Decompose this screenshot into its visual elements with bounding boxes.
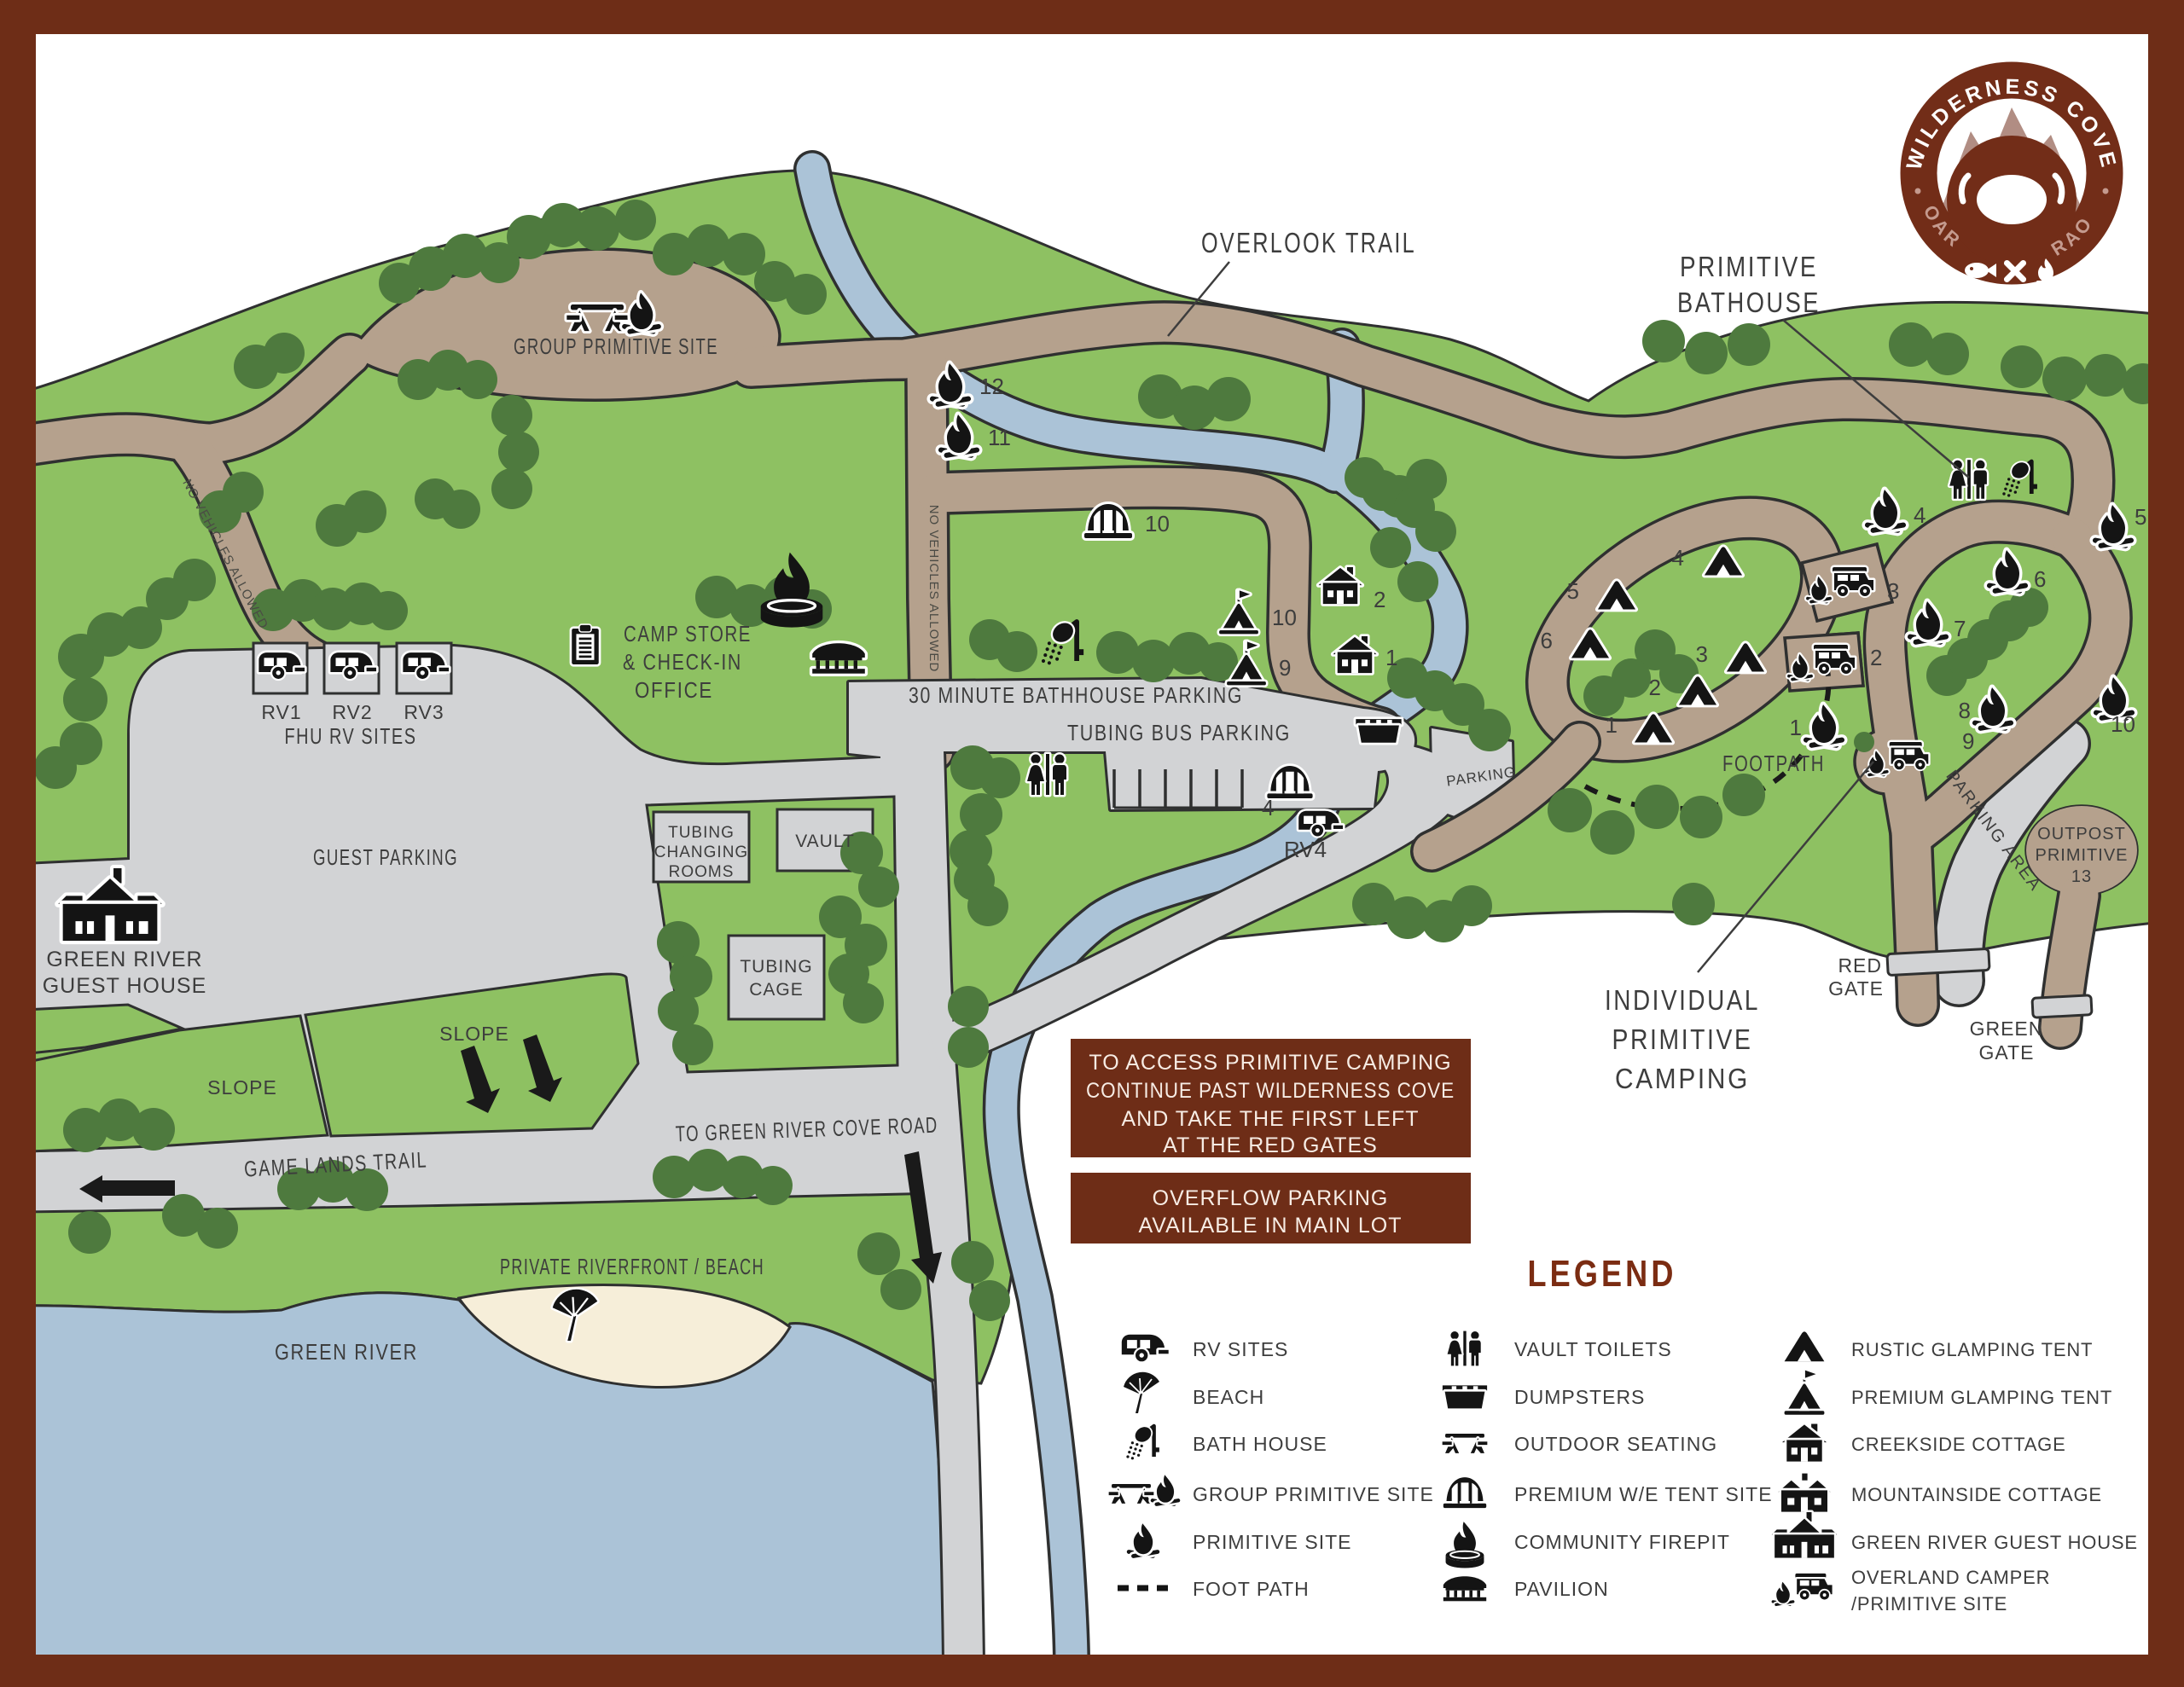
- svg-text:ROOMS: ROOMS: [669, 863, 735, 881]
- svg-text:GUEST HOUSE: GUEST HOUSE: [43, 974, 207, 998]
- svg-text:CAMPING: CAMPING: [1615, 1063, 1750, 1094]
- svg-text:4: 4: [1914, 502, 1926, 528]
- svg-text:GATE: GATE: [1828, 977, 1884, 1000]
- svg-text:BATH HOUSE: BATH HOUSE: [1193, 1433, 1327, 1455]
- svg-text:GATE: GATE: [1979, 1041, 2035, 1064]
- svg-text:RUSTIC GLAMPING TENT: RUSTIC GLAMPING TENT: [1851, 1339, 2093, 1360]
- svg-text:4: 4: [1262, 795, 1274, 820]
- svg-text:PREMIUM GLAMPING TENT: PREMIUM GLAMPING TENT: [1851, 1387, 2112, 1408]
- svg-text:FOOT PATH: FOOT PATH: [1193, 1578, 1310, 1600]
- svg-text:COMMUNITY FIREPIT: COMMUNITY FIREPIT: [1514, 1531, 1730, 1553]
- svg-text:8: 8: [1959, 698, 1971, 723]
- svg-text:CAMP STORE: CAMP STORE: [624, 621, 752, 646]
- svg-text:TO ACCESS PRIMITIVE CAMPING: TO ACCESS PRIMITIVE CAMPING: [1089, 1051, 1451, 1075]
- svg-text:SLOPE: SLOPE: [207, 1076, 277, 1099]
- svg-text:CONTINUE PAST WILDERNESS COVE: CONTINUE PAST WILDERNESS COVE: [1086, 1079, 1455, 1103]
- svg-text:1: 1: [1606, 712, 1618, 738]
- svg-text:3: 3: [1887, 578, 1899, 604]
- svg-text:GREEN RIVER: GREEN RIVER: [46, 948, 202, 971]
- svg-text:AT THE RED GATES: AT THE RED GATES: [1163, 1133, 1378, 1157]
- svg-text:AND TAKE THE FIRST LEFT: AND TAKE THE FIRST LEFT: [1122, 1107, 1420, 1131]
- svg-text:GREEN RIVER GUEST HOUSE: GREEN RIVER GUEST HOUSE: [1851, 1532, 2138, 1553]
- svg-text:TUBING: TUBING: [668, 824, 735, 842]
- svg-text:CAGE: CAGE: [749, 980, 804, 1000]
- svg-text:30 MINUTE BATHHOUSE PARKING: 30 MINUTE BATHHOUSE PARKING: [909, 682, 1243, 708]
- svg-text:DUMPSTERS: DUMPSTERS: [1514, 1386, 1645, 1408]
- svg-text:13: 13: [2071, 867, 2092, 886]
- svg-text:PRIMITIVE: PRIMITIVE: [1680, 251, 1818, 282]
- svg-text:5: 5: [2135, 504, 2146, 530]
- svg-text:OVERFLOW PARKING: OVERFLOW PARKING: [1153, 1186, 1389, 1210]
- svg-text:9: 9: [1962, 728, 1974, 754]
- svg-text:AVAILABLE IN MAIN LOT: AVAILABLE IN MAIN LOT: [1138, 1214, 1402, 1238]
- svg-text:GREEN: GREEN: [1970, 1017, 2044, 1040]
- svg-text:OFFICE: OFFICE: [635, 677, 713, 703]
- svg-text:VAULT: VAULT: [795, 832, 855, 851]
- svg-text:FHU RV SITES: FHU RV SITES: [285, 723, 417, 749]
- svg-text:PRIMITIVE: PRIMITIVE: [2035, 846, 2128, 865]
- svg-text:4: 4: [1672, 545, 1684, 571]
- svg-text:OUTDOOR SEATING: OUTDOOR SEATING: [1514, 1433, 1717, 1455]
- svg-text:PRIMITIVE SITE: PRIMITIVE SITE: [1193, 1531, 1352, 1553]
- svg-text:12: 12: [979, 374, 1004, 399]
- svg-text:10: 10: [2111, 711, 2135, 737]
- svg-text:2: 2: [1374, 587, 1385, 612]
- svg-text:7: 7: [1954, 616, 1966, 641]
- svg-text:6: 6: [1541, 628, 1553, 653]
- svg-text:5: 5: [1567, 578, 1579, 604]
- svg-text:OVERLAND CAMPER: OVERLAND CAMPER: [1851, 1567, 2050, 1588]
- svg-text:BEACH: BEACH: [1193, 1386, 1264, 1408]
- svg-text:11: 11: [988, 425, 1011, 450]
- svg-text:PRIVATE RIVERFRONT / BEACH: PRIVATE RIVERFRONT / BEACH: [500, 1254, 764, 1279]
- svg-text:2: 2: [1649, 675, 1661, 700]
- svg-text:RV3: RV3: [404, 701, 444, 723]
- svg-text:INDIVIDUAL: INDIVIDUAL: [1605, 984, 1760, 1016]
- svg-text:RV2: RV2: [332, 701, 372, 723]
- svg-text:RV4: RV4: [1284, 837, 1327, 862]
- svg-text:PREMIUM W/E TENT SITE: PREMIUM W/E TENT SITE: [1514, 1483, 1773, 1505]
- svg-text:NO VEHICLES ALLOWED: NO VEHICLES ALLOWED: [926, 505, 941, 673]
- svg-text:PRIMITIVE: PRIMITIVE: [1612, 1023, 1753, 1055]
- svg-text:1: 1: [1385, 645, 1397, 670]
- svg-text:LEGEND: LEGEND: [1528, 1253, 1677, 1295]
- svg-text:/PRIMITIVE SITE: /PRIMITIVE SITE: [1851, 1593, 2007, 1615]
- svg-text:FOOTPATH: FOOTPATH: [1722, 751, 1825, 776]
- svg-text:BATHOUSE: BATHOUSE: [1677, 287, 1821, 318]
- svg-text:TUBING: TUBING: [740, 957, 812, 977]
- svg-text:GROUP PRIMITIVE SITE: GROUP PRIMITIVE SITE: [1193, 1483, 1434, 1505]
- svg-text:MOUNTAINSIDE COTTAGE: MOUNTAINSIDE COTTAGE: [1851, 1484, 2102, 1505]
- svg-text:CHANGING: CHANGING: [654, 843, 748, 861]
- svg-text:10: 10: [1272, 605, 1297, 630]
- svg-text:GROUP PRIMITIVE SITE: GROUP PRIMITIVE SITE: [514, 333, 718, 359]
- svg-text:RV1: RV1: [261, 701, 301, 723]
- svg-text:9: 9: [1279, 655, 1291, 681]
- svg-text:3: 3: [1696, 641, 1708, 667]
- svg-text:VAULT TOILETS: VAULT TOILETS: [1514, 1338, 1672, 1360]
- svg-text:RV SITES: RV SITES: [1193, 1338, 1288, 1360]
- svg-text:GUEST PARKING: GUEST PARKING: [313, 844, 458, 870]
- svg-text:OUTPOST: OUTPOST: [2037, 825, 2126, 843]
- svg-text:TUBING BUS PARKING: TUBING BUS PARKING: [1067, 720, 1291, 745]
- svg-text:6: 6: [2034, 566, 2046, 592]
- svg-text:1: 1: [1790, 715, 1802, 740]
- svg-text:RED: RED: [1838, 954, 1882, 977]
- svg-text:OVERLOOK TRAIL: OVERLOOK TRAIL: [1201, 227, 1416, 258]
- svg-text:2: 2: [1870, 645, 1882, 670]
- svg-text:SLOPE: SLOPE: [439, 1023, 509, 1045]
- svg-text:PAVILION: PAVILION: [1514, 1578, 1609, 1600]
- svg-text:10: 10: [1145, 511, 1170, 536]
- svg-text:GREEN RIVER: GREEN RIVER: [275, 1339, 418, 1365]
- svg-text:& CHECK-IN: & CHECK-IN: [623, 649, 742, 675]
- svg-text:CREEKSIDE COTTAGE: CREEKSIDE COTTAGE: [1851, 1434, 2066, 1455]
